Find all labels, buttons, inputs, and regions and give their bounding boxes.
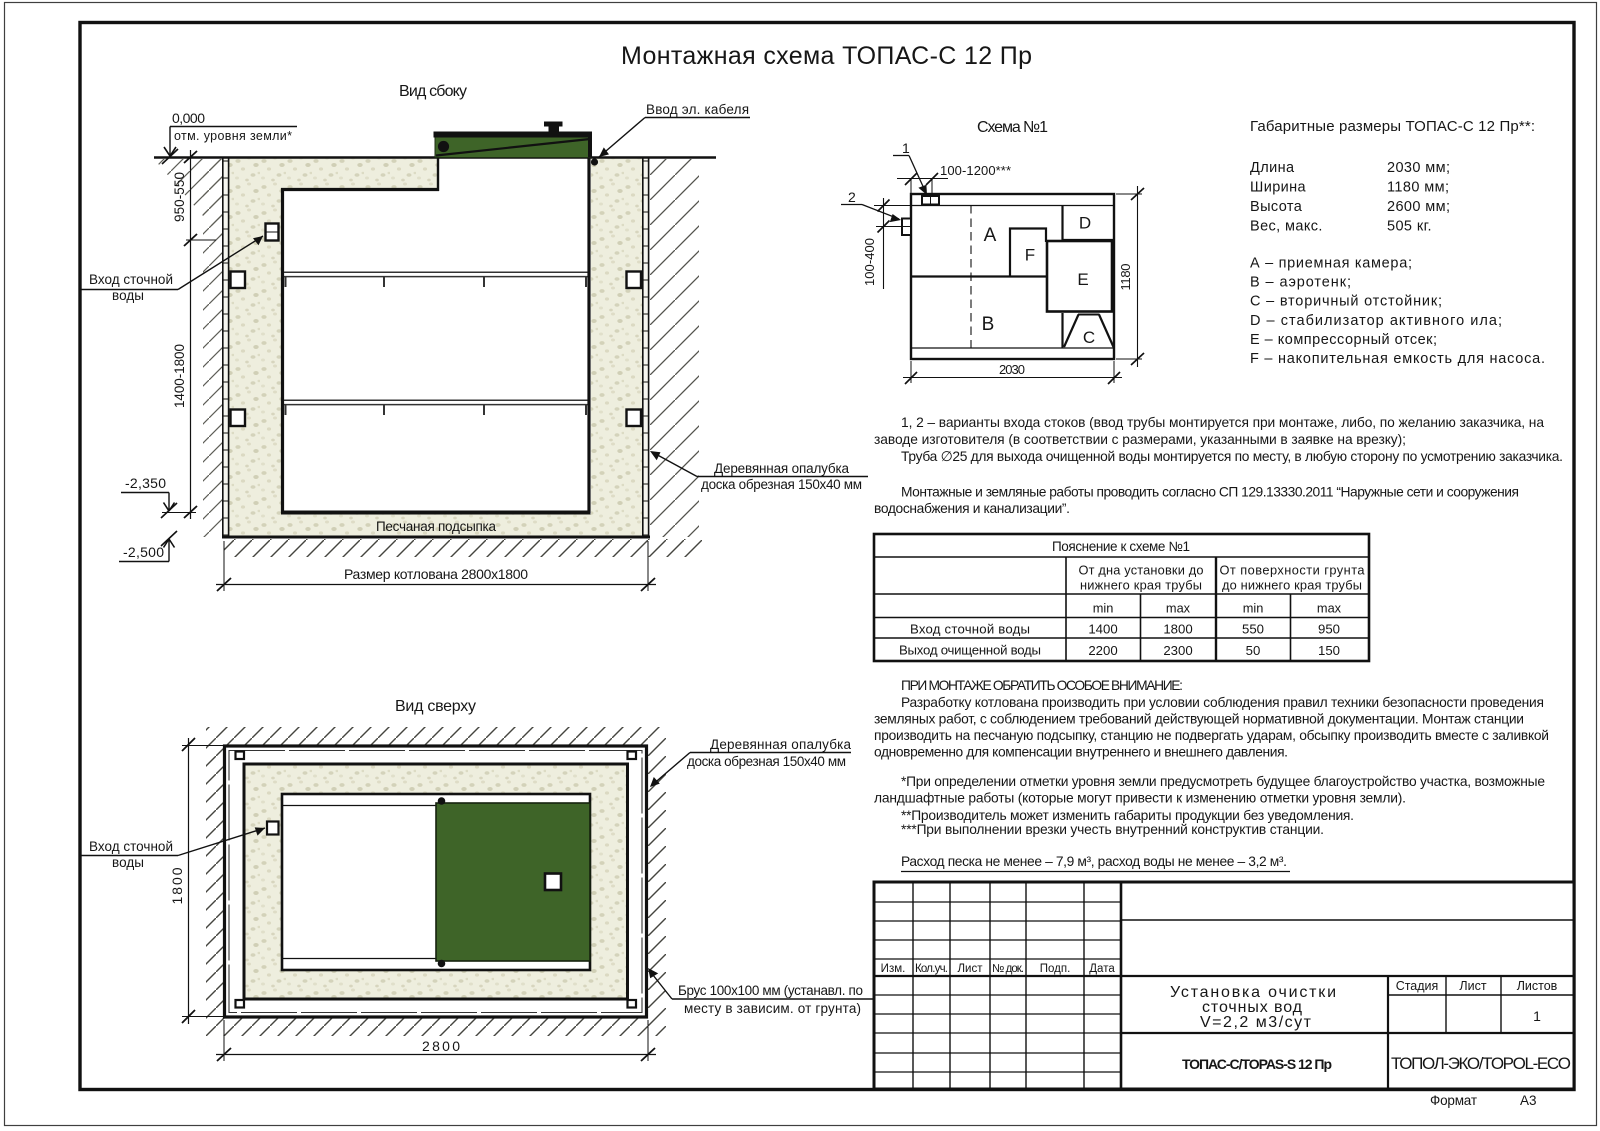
svg-text:2030: 2030	[999, 362, 1025, 377]
svg-text:1180 мм;: 1180 мм;	[1387, 180, 1449, 196]
svg-text:месту в зависим. от грунта): месту в зависим. от грунта)	[684, 1001, 861, 1016]
svg-text:1800: 1800	[1163, 622, 1192, 637]
svg-text:max: max	[1317, 601, 1342, 616]
svg-text:1180: 1180	[1118, 264, 1133, 291]
svg-text:0,000: 0,000	[172, 110, 205, 126]
svg-text:Лист: Лист	[1459, 979, 1486, 993]
svg-text:Пояснение к схеме №1: Пояснение к схеме №1	[1052, 539, 1190, 554]
svg-text:ландшафтные работы (которые мо: ландшафтные работы (которые могут привес…	[874, 791, 1406, 806]
svg-text:2600 мм;: 2600 мм;	[1387, 199, 1450, 215]
svg-text:Кол.уч.: Кол.уч.	[915, 963, 948, 975]
svg-text:ТОПАС-С/TOPAS-S 12 Пр: ТОПАС-С/TOPAS-S 12 Пр	[1182, 1056, 1332, 1072]
svg-text:50: 50	[1246, 643, 1261, 658]
svg-text:одновременно для компенсации в: одновременно для компенсации внутреннего…	[874, 745, 1288, 760]
svg-text:Стадия: Стадия	[1396, 979, 1439, 993]
svg-text:150: 150	[1318, 643, 1340, 658]
svg-text:A: A	[984, 225, 997, 246]
svg-text:1, 2 – варианты входа стоков: 1, 2 – варианты входа стоков (ввод трубы…	[901, 415, 1544, 430]
svg-text:950: 950	[1318, 622, 1340, 637]
svg-text:ТОПОЛ-ЭКО/TOPOL-ECO: ТОПОЛ-ЭКО/TOPOL-ECO	[1391, 1054, 1571, 1073]
svg-text:От дна установки до: От дна установки до	[1079, 563, 1204, 578]
svg-text:Ширина: Ширина	[1250, 180, 1307, 196]
svg-text:Длина: Длина	[1250, 160, 1295, 176]
svg-text:C: C	[1083, 328, 1095, 347]
svg-text:D: D	[1079, 214, 1091, 233]
svg-text:Монтажная схема ТОПАС-С 12 Пр: Монтажная схема ТОПАС-С 12 Пр	[621, 42, 1032, 70]
svg-text:2200: 2200	[1088, 643, 1117, 658]
svg-text:Вид сверху: Вид сверху	[395, 698, 476, 715]
svg-text:В – аэротенк;: В – аэротенк;	[1250, 275, 1351, 291]
svg-text:B: B	[982, 314, 995, 335]
svg-text:-2,350: -2,350	[125, 475, 166, 491]
svg-text:1: 1	[1533, 1008, 1541, 1024]
svg-text:*При определении отметки уровн: *При определении отметки уровня земли пр…	[901, 774, 1545, 789]
svg-text:отм. уровня земли*: отм. уровня земли*	[174, 129, 292, 143]
svg-text:производить на песчаную подсып: производить на песчаную подсыпку, станци…	[874, 728, 1549, 743]
svg-text:доска обрезная 150х40 мм: доска обрезная 150х40 мм	[687, 754, 846, 769]
svg-text:С – вторичный отстойник;: С – вторичный отстойник;	[1250, 294, 1442, 310]
svg-text:950-550: 950-550	[172, 172, 187, 222]
svg-text:Дата: Дата	[1089, 963, 1115, 975]
svg-text:доска обрезная 150х40 мм: доска обрезная 150х40 мм	[701, 477, 862, 492]
svg-text:земляных работ, с соблюдением: земляных работ, с соблюдением требований…	[874, 712, 1524, 727]
svg-text:Монтажные и земляные работы пр: Монтажные и земляные работы проводить со…	[901, 485, 1519, 500]
svg-text:2: 2	[848, 189, 856, 205]
svg-text:D – стабилизатор активного ила: D – стабилизатор активного ила;	[1250, 313, 1502, 329]
svg-text:№ док.: № док.	[992, 963, 1024, 975]
svg-text:-2,500: -2,500	[123, 544, 164, 560]
svg-text:E: E	[1077, 270, 1088, 289]
svg-text:Изм.: Изм.	[881, 963, 906, 975]
svg-text:Песчаная подсыпка: Песчаная подсыпка	[376, 519, 496, 534]
svg-text:**Производитель может изменить: **Производитель может изменить габариты …	[901, 808, 1354, 823]
svg-text:Вид сбоку: Вид сбоку	[399, 83, 467, 100]
svg-text:Выход очищенной воды: Выход очищенной воды	[899, 643, 1041, 658]
svg-text:Размер котлована 2800х1800: Размер котлована 2800х1800	[344, 566, 528, 582]
svg-text:Деревянная опалубка: Деревянная опалубка	[710, 737, 851, 752]
svg-text:Высота: Высота	[1250, 199, 1303, 215]
svg-text:Вход сточной: Вход сточной	[89, 839, 173, 854]
svg-text:ПРИ МОНТАЖЕ ОБРАТИТЬ ОСОБОЕ ВН: ПРИ МОНТАЖЕ ОБРАТИТЬ ОСОБОЕ ВНИМАНИЕ:	[901, 678, 1183, 693]
svg-text:Вход сточной воды: Вход сточной воды	[910, 622, 1030, 637]
svg-text:2030 мм;: 2030 мм;	[1387, 160, 1450, 176]
svg-text:505 кг.: 505 кг.	[1387, 219, 1432, 235]
svg-text:Расход песка не менее – 7,9 м³: Расход песка не менее – 7,9 м³, расход в…	[901, 854, 1287, 869]
svg-text:нижнего края трубы: нижнего края трубы	[1080, 578, 1202, 593]
svg-text:1: 1	[902, 140, 910, 156]
svg-text:F: F	[1025, 246, 1035, 265]
svg-text:F – накопительная емкость для: F – накопительная емкость для насоса.	[1250, 351, 1545, 367]
svg-text:550: 550	[1242, 622, 1264, 637]
svg-text:V=2,2 м3/сут: V=2,2 м3/сут	[1200, 1014, 1312, 1031]
svg-text:Разработку котлована производи: Разработку котлована производить при усл…	[901, 695, 1544, 710]
svg-text:Деревянная опалубка: Деревянная опалубка	[714, 461, 849, 476]
svg-text:Листов: Листов	[1517, 979, 1558, 993]
svg-text:Вес, макс.: Вес, макс.	[1250, 219, 1323, 235]
svg-text:От поверхности грунта: От поверхности грунта	[1220, 563, 1366, 578]
svg-text:воды: воды	[112, 855, 144, 870]
svg-text:Подп.: Подп.	[1040, 963, 1071, 975]
svg-text:1800: 1800	[169, 867, 185, 904]
svg-text:max: max	[1166, 601, 1191, 616]
svg-text:Схема №1: Схема №1	[977, 119, 1048, 136]
svg-text:Е – компрессорный отсек;: Е – компрессорный отсек;	[1250, 332, 1437, 348]
svg-text:1400-1800: 1400-1800	[172, 344, 187, 408]
svg-text:min: min	[1243, 601, 1264, 616]
svg-text:min: min	[1093, 601, 1114, 616]
svg-text:Вход сточной: Вход сточной	[89, 272, 173, 287]
svg-text:2300: 2300	[1163, 643, 1192, 658]
svg-text:водоснабжения и канализации”.: водоснабжения и канализации”.	[874, 501, 1070, 516]
svg-text:Брус 100х100 мм (устанавл. по: Брус 100х100 мм (устанавл. по	[678, 983, 863, 998]
svg-text:Формат: Формат	[1430, 1093, 1477, 1108]
svg-text:до нижнего края трубы: до нижнего края трубы	[1222, 578, 1362, 593]
svg-text:Труба ∅25 для выхода очищенной: Труба ∅25 для выхода очищенной воды монт…	[901, 449, 1563, 464]
svg-text:Габаритные размеры ТОПАС-С 12: Габаритные размеры ТОПАС-С 12 Пр**:	[1250, 118, 1535, 135]
svg-text:***При выполнении врезки учест: ***При выполнении врезки учесть внутренн…	[901, 822, 1324, 837]
svg-text:100-1200***: 100-1200***	[940, 163, 1011, 178]
svg-text:А3: А3	[1520, 1093, 1537, 1108]
svg-text:Лист: Лист	[958, 963, 984, 975]
svg-text:100-400: 100-400	[862, 238, 877, 286]
svg-text:А – приемная камера;: А – приемная камера;	[1250, 256, 1412, 272]
svg-text:Ввод эл. кабеля: Ввод эл. кабеля	[646, 102, 749, 117]
svg-text:1400: 1400	[1088, 622, 1117, 637]
svg-text:воды: воды	[112, 288, 144, 303]
svg-text:заводе изготовителя (в соответ: заводе изготовителя (в соответствии с ра…	[874, 432, 1406, 447]
